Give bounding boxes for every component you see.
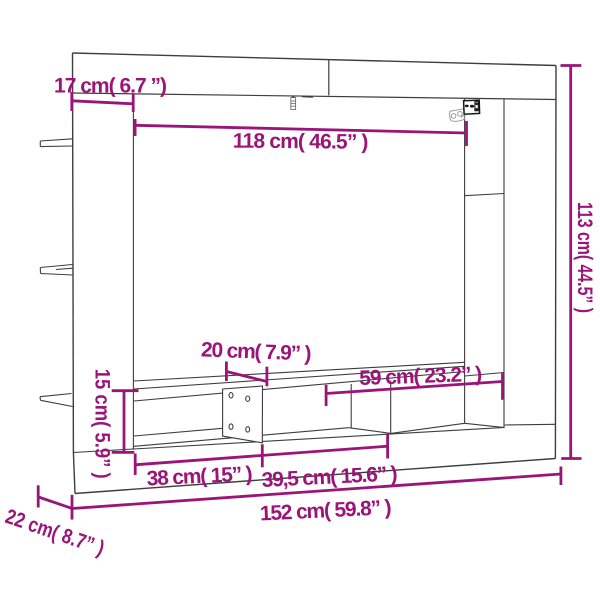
svg-text:15 cm( 5.9” ): 15 cm( 5.9” ) (91, 369, 114, 479)
svg-text:17 cm( 6.7 ”): 17 cm( 6.7 ”) (54, 74, 167, 97)
svg-text:59 cm( 23.2” ): 59 cm( 23.2” ) (359, 363, 483, 390)
svg-text:113 cm( 44.5” ): 113 cm( 44.5” ) (573, 202, 596, 313)
svg-text:118 cm( 46.5” ): 118 cm( 46.5” ) (233, 130, 369, 154)
svg-text:20 cm( 7.9” ): 20 cm( 7.9” ) (201, 338, 312, 365)
